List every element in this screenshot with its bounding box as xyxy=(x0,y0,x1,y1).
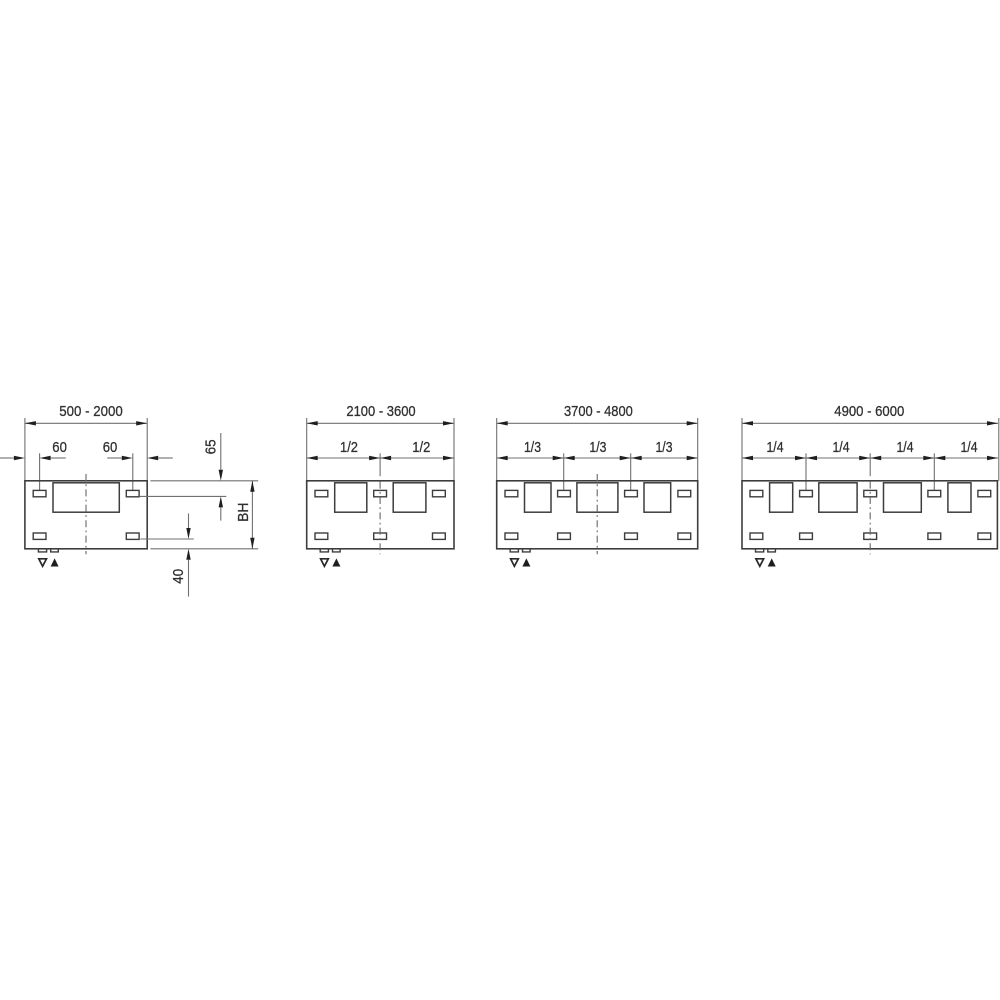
svg-text:1/3: 1/3 xyxy=(524,439,541,456)
svg-text:1/3: 1/3 xyxy=(589,439,606,456)
svg-text:40: 40 xyxy=(170,569,187,584)
svg-text:1/2: 1/2 xyxy=(412,439,430,456)
svg-text:BH: BH xyxy=(235,503,252,522)
svg-text:1/2: 1/2 xyxy=(340,439,358,456)
svg-text:1/4: 1/4 xyxy=(961,439,978,456)
svg-text:60: 60 xyxy=(103,439,118,456)
svg-text:1/4: 1/4 xyxy=(897,439,914,456)
svg-text:500 - 2000: 500 - 2000 xyxy=(59,403,123,420)
svg-text:65: 65 xyxy=(202,439,219,454)
svg-text:4900 - 6000: 4900 - 6000 xyxy=(834,403,904,420)
svg-text:1/3: 1/3 xyxy=(656,439,673,456)
svg-text:60: 60 xyxy=(52,439,67,456)
svg-text:2100 - 3600: 2100 - 3600 xyxy=(346,403,415,420)
svg-text:1/4: 1/4 xyxy=(833,439,850,456)
svg-text:3700 - 4800: 3700 - 4800 xyxy=(564,403,633,420)
svg-text:1/4: 1/4 xyxy=(767,439,784,456)
